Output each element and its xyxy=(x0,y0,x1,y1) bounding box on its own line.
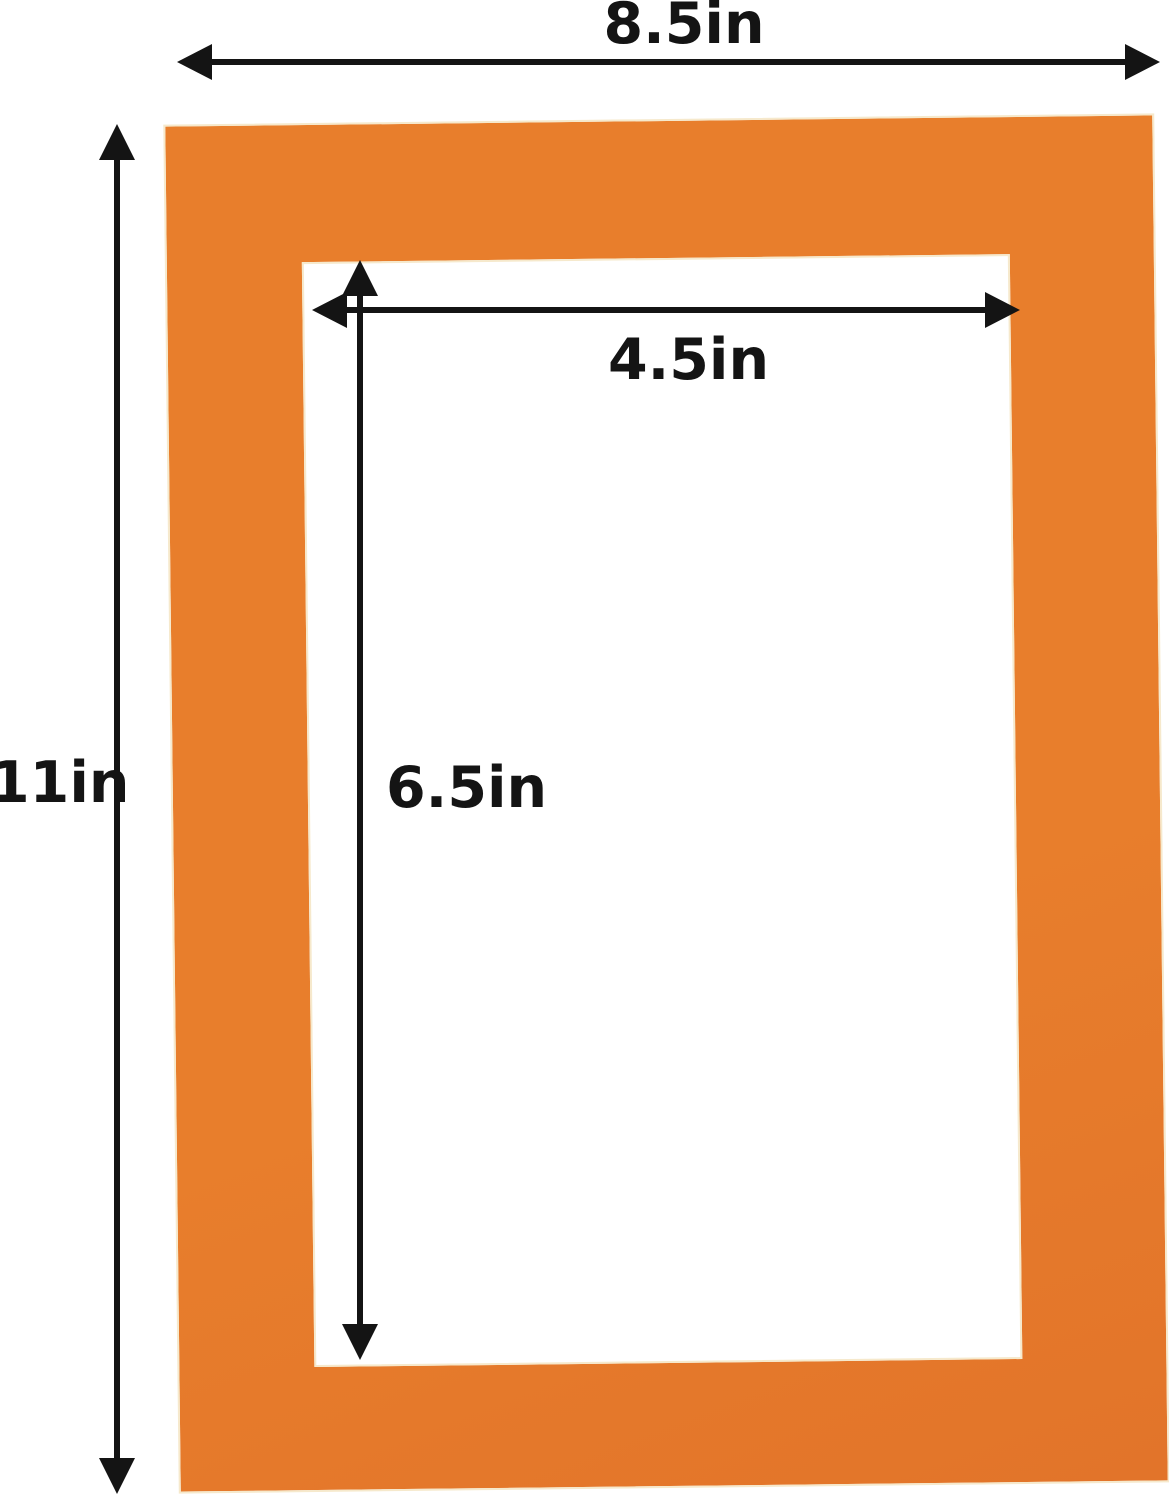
arrowhead-up-icon xyxy=(99,124,135,160)
diagram-canvas: 8.5in 11in 4.5in 6.5in xyxy=(0,0,1169,1500)
arrowhead-down-icon xyxy=(99,1458,135,1494)
picture-mat-frame xyxy=(163,113,1169,1493)
inner-width-label: 4.5in xyxy=(556,329,821,392)
inner-height-label: 6.5in xyxy=(386,757,616,820)
outer-width-label: 8.5in xyxy=(534,0,834,56)
outer-height-label: 11in xyxy=(0,752,110,815)
arrowhead-left-icon xyxy=(177,44,212,80)
arrowhead-right-icon xyxy=(1125,44,1160,80)
